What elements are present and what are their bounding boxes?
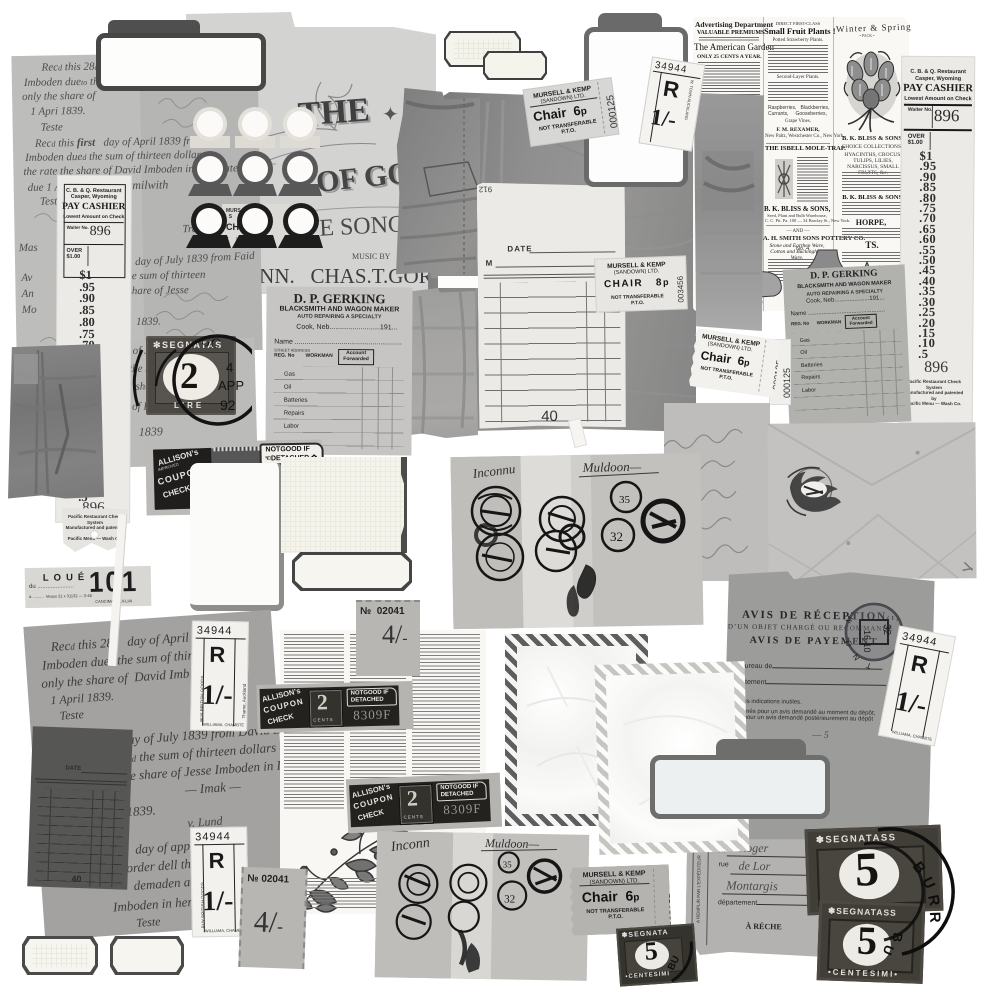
svg-text:R: R (926, 912, 943, 924)
svg-text:R: R (924, 893, 943, 907)
svg-text:32: 32 (610, 529, 623, 544)
svg-text:B. K. BLISS & SONS: B. K. BLISS & SONS (842, 135, 902, 142)
svg-text:32: 32 (504, 893, 515, 905)
svg-text:BU: BU (666, 954, 682, 972)
svg-text:T: T (865, 660, 873, 670)
svg-text:CHOICE COLLECTIONS.: CHOICE COLLECTIONS. (842, 144, 903, 150)
svg-text:35: 35 (503, 859, 513, 869)
svg-text:35: 35 (619, 494, 631, 506)
svg-text:4: 4 (226, 360, 233, 375)
svg-text:B: B (889, 931, 905, 943)
svg-text:16 10: 16 10 (862, 630, 872, 653)
svg-text:92: 92 (220, 397, 236, 413)
svg-text:АPP: АPP (218, 378, 244, 393)
svg-text:GC: GC (199, 333, 222, 352)
svg-text:32: 32 (881, 624, 892, 636)
svg-text:U: U (880, 943, 897, 957)
svg-text:No. 4.: No. 4. (796, 246, 811, 252)
svg-text:O: O (844, 640, 854, 648)
